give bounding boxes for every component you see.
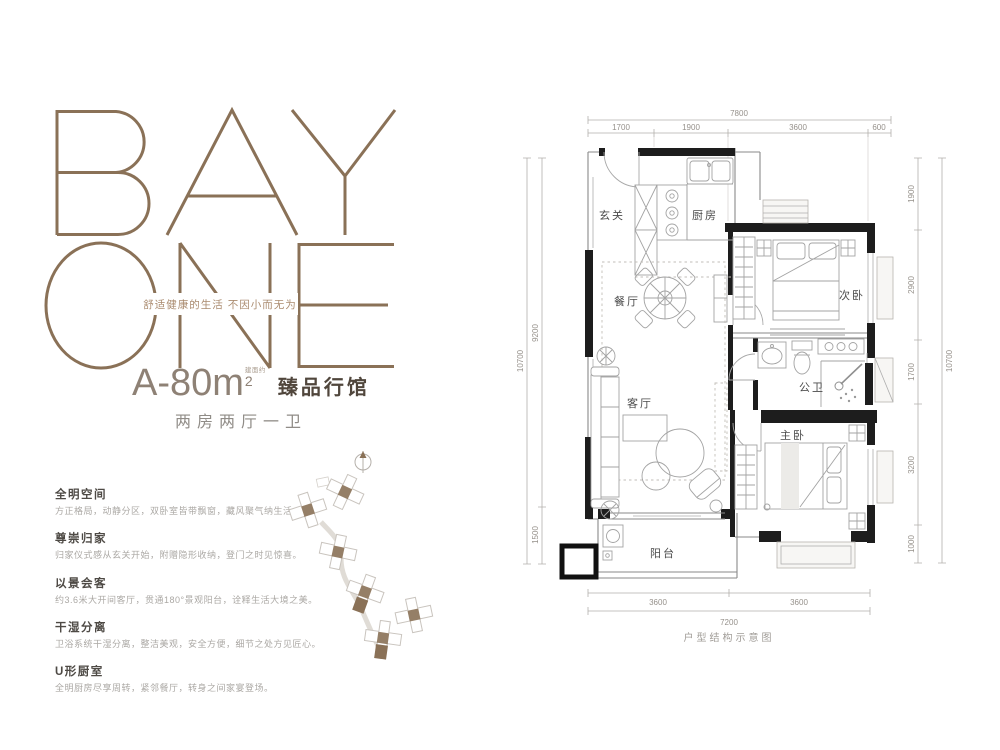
dim-left-seg: 1500 bbox=[531, 526, 540, 544]
dim-bottom: 3600 3600 7200 bbox=[588, 589, 870, 627]
dim-right-seg: 1000 bbox=[907, 535, 916, 553]
north-arrow-icon bbox=[355, 451, 371, 473]
entry-door bbox=[604, 152, 639, 187]
room-label-bathroom: 公卫 bbox=[799, 382, 825, 394]
room-label-living: 客厅 bbox=[627, 396, 653, 410]
dim-right-seg: 2900 bbox=[907, 276, 916, 294]
feature-desc: 全明厨房尽享周转，紧邻餐厅，转身之间家宴登场。 bbox=[55, 683, 345, 694]
poster-canvas: BAY 舒适健康的生活 不因小而无为 A-80m 建面约 2 bbox=[0, 0, 1000, 750]
dim-bottom-seg: 3600 bbox=[790, 598, 808, 607]
unit-title-row: A-80m 建面约 2 臻品行馆 bbox=[132, 364, 370, 402]
plant-icon bbox=[597, 347, 615, 365]
armchair bbox=[686, 466, 723, 502]
dim-right-total: 10700 bbox=[945, 349, 954, 372]
dim-bottom-seg: 3600 bbox=[649, 598, 667, 607]
unit-area-exponent: 2 bbox=[245, 374, 253, 388]
dim-left: 10700 9200 1500 bbox=[516, 158, 546, 564]
room-label-second-bedroom: 次卧 bbox=[839, 288, 865, 302]
dim-top-seg: 600 bbox=[872, 123, 886, 132]
dim-right: 1900 2900 1700 3200 1000 10700 bbox=[907, 158, 954, 563]
site-buildings bbox=[286, 469, 436, 660]
dim-top-seg: 1900 bbox=[682, 123, 700, 132]
unit-area-superscript: 建面约 2 bbox=[245, 364, 266, 388]
room-label-dining: 餐厅 bbox=[614, 294, 640, 308]
logo-word-bay bbox=[57, 110, 395, 235]
logo-bay-one: BAY 舒适健康的生活 不因小而无为 bbox=[40, 78, 398, 372]
room-label-entry: 玄关 bbox=[599, 208, 625, 222]
dim-top-total: 7800 bbox=[730, 109, 748, 118]
site-plan bbox=[283, 440, 441, 670]
dim-left-seg: 9200 bbox=[531, 324, 540, 342]
shower-icon bbox=[835, 364, 862, 402]
ac-plinth bbox=[562, 546, 596, 577]
dim-right-seg: 1900 bbox=[907, 185, 916, 203]
dim-top-seg: 1700 bbox=[612, 123, 630, 132]
highlighted-unit bbox=[374, 644, 388, 660]
dim-right-seg: 3200 bbox=[907, 456, 916, 474]
dim-left-total: 10700 bbox=[516, 349, 525, 372]
dim-right-seg: 1700 bbox=[907, 363, 916, 381]
dining-table bbox=[634, 267, 696, 329]
dim-bottom-total: 7200 bbox=[720, 618, 738, 627]
floor-plan: 7800 1700 1900 3600 600 10700 9200 1500 … bbox=[515, 85, 985, 663]
dim-top-seg: 3600 bbox=[789, 123, 807, 132]
floorplan-caption: 户型结构示意图 bbox=[684, 631, 775, 644]
unit-series-title: 臻品行馆 bbox=[278, 371, 370, 400]
room-label-kitchen: 厨房 bbox=[692, 209, 718, 222]
unit-layout-desc: 两房两厅一卫 bbox=[132, 408, 350, 432]
room-label-master-bedroom: 主卧 bbox=[780, 429, 806, 442]
dim-top: 7800 1700 1900 3600 600 bbox=[588, 109, 891, 221]
room-label-balcony: 阳台 bbox=[650, 546, 676, 560]
brand-tagline: 舒适健康的生活 不因小而无为 bbox=[143, 298, 296, 311]
unit-model: A-80m bbox=[132, 364, 244, 402]
